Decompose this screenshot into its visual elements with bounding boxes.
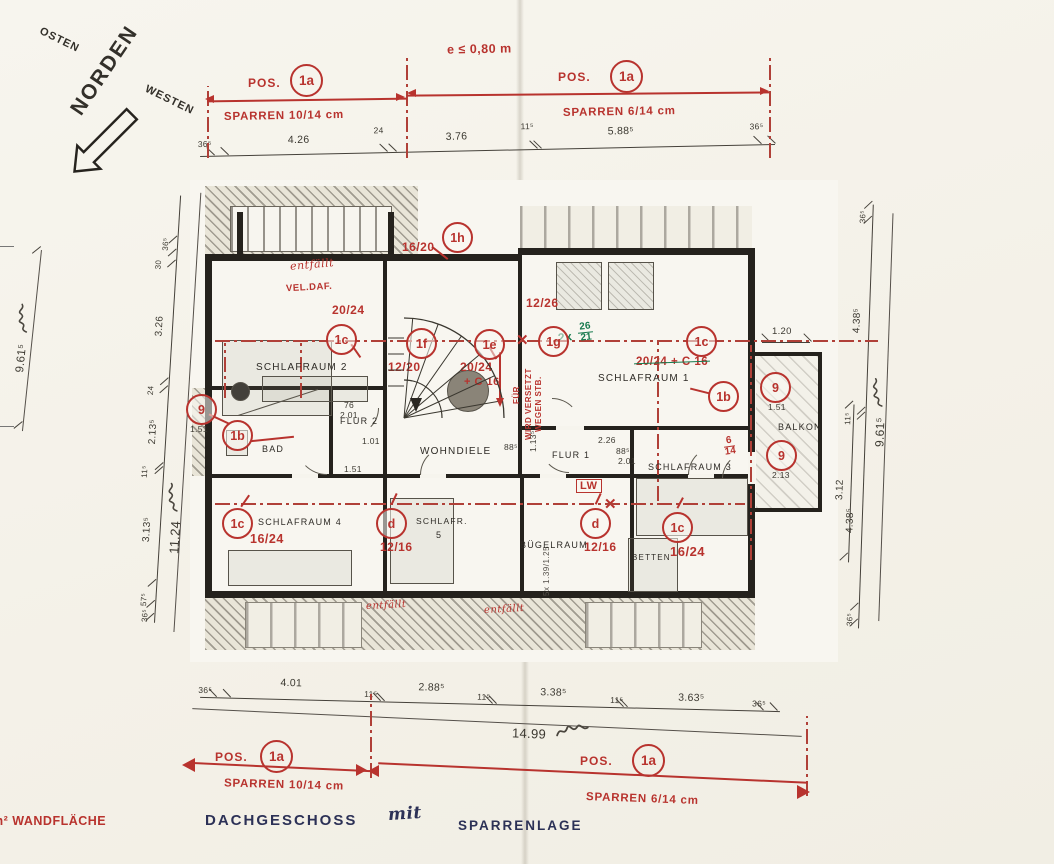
marker-label: 1b bbox=[716, 390, 731, 404]
interior-dim: 2.01 bbox=[618, 456, 636, 466]
balcony-wall bbox=[818, 352, 822, 512]
pos-circle-1a: 1a bbox=[260, 740, 293, 773]
section-line-vertical bbox=[750, 345, 752, 560]
pos-label: POS. bbox=[558, 70, 591, 84]
marker-label: 1c bbox=[335, 333, 349, 347]
room-label-schlafraum4: SCHLAFRAUM 4 bbox=[258, 517, 342, 527]
arrowhead bbox=[797, 785, 810, 799]
pos-marker-1g: 1g bbox=[538, 326, 569, 357]
pos-marker-9: 9 bbox=[760, 372, 791, 403]
section-line bbox=[215, 503, 745, 505]
roof-window-bottom bbox=[245, 602, 362, 648]
compass-west-label: WESTEN bbox=[143, 83, 196, 117]
note-entfaellt: entfällt bbox=[366, 599, 407, 612]
arrowhead bbox=[368, 765, 379, 777]
marker-label: 1c bbox=[231, 517, 245, 531]
arrowhead bbox=[407, 89, 416, 97]
compass-east-label: OSTEN bbox=[38, 25, 82, 55]
tick-mark bbox=[220, 147, 229, 156]
pos-label: POS. bbox=[215, 750, 248, 764]
rafter-note: 20/24 bbox=[332, 303, 365, 317]
dimension-value: 3.63⁵ bbox=[678, 692, 705, 705]
rafter-note: 16/24 bbox=[250, 532, 284, 546]
dimension-value: 11⁵ bbox=[520, 121, 533, 131]
dimension-value: 36⁵ bbox=[845, 613, 854, 626]
overall-dimension: 9.61⁵ bbox=[872, 417, 887, 447]
rafter-note: 12/16 bbox=[584, 540, 617, 554]
sparren-label-bottom-left: SPARREN 10/14 cm bbox=[224, 777, 344, 792]
pos-circle-1a: 1a bbox=[610, 60, 643, 93]
stair-steps-note: 5x 1.39/1.25 bbox=[542, 546, 551, 596]
dimension-value: 5.88⁵ bbox=[608, 125, 635, 138]
tick-mark bbox=[864, 201, 873, 210]
dimension-value: 24 bbox=[146, 385, 156, 395]
interior-dim: 2.26 bbox=[598, 435, 616, 445]
room-label-schlafr5-number: 5 bbox=[436, 530, 442, 540]
arrowhead bbox=[396, 93, 405, 101]
dimension-value: 4.26 bbox=[288, 134, 310, 146]
pos-marker-d: d bbox=[376, 508, 407, 539]
room-label-flur2: FLUR 2 bbox=[340, 416, 378, 426]
green-note-fraction: 26 21 bbox=[577, 321, 594, 343]
wall-segment bbox=[205, 591, 755, 598]
partition-wall bbox=[518, 255, 522, 478]
drawing-title: DACHGESCHOSS bbox=[205, 812, 357, 829]
hand-check-scribble bbox=[16, 302, 33, 333]
overall-dimension: 14.99 bbox=[512, 725, 547, 741]
section-line-vertical bbox=[657, 341, 659, 501]
balcony-wall bbox=[752, 508, 822, 512]
sparren-label-top-right: SPARREN 6/14 cm bbox=[563, 105, 676, 119]
marker-label: d bbox=[592, 517, 600, 531]
floor-plan-drawing: OSTEN NORDEN WESTEN e ≤ 0,80 m POS. 1a S… bbox=[0, 0, 1054, 864]
pos-circle-label: 1a bbox=[299, 73, 314, 88]
dimension-value: 36⁵ bbox=[198, 685, 212, 695]
tick-mark bbox=[222, 689, 231, 698]
tick-mark bbox=[388, 143, 397, 152]
dimension-value: 3.26 bbox=[153, 316, 165, 337]
arrowhead bbox=[760, 87, 769, 95]
dimension-value: 36⁵ bbox=[161, 237, 171, 251]
interior-dim: 1.01 bbox=[362, 436, 380, 446]
dimension-value: 3.76 bbox=[446, 130, 468, 142]
pos-span-line bbox=[407, 91, 769, 96]
fraction-bottom: 14 bbox=[724, 445, 737, 457]
hand-check-scribble bbox=[872, 377, 887, 407]
bed-marking bbox=[224, 343, 226, 398]
pos-label: POS. bbox=[580, 754, 613, 768]
roof-window-bottom bbox=[585, 602, 702, 648]
red-arrow-down bbox=[496, 398, 504, 407]
room-label-betten: BETTEN bbox=[632, 553, 671, 562]
pos-circle-1a: 1a bbox=[290, 64, 323, 97]
tick-mark bbox=[379, 144, 388, 153]
annotation-versetzt: WIRD VERSETZT bbox=[524, 368, 533, 440]
room-label-schlafraum3: SCHLAFRAUM 3 bbox=[648, 462, 732, 472]
dimension-line bbox=[848, 404, 855, 562]
wall-segment bbox=[205, 254, 521, 261]
pos-label: POS. bbox=[248, 76, 281, 90]
sparren-label-bottom-right: SPARREN 6/14 cm bbox=[586, 791, 699, 807]
note-entfaellt: entfällt bbox=[484, 603, 525, 616]
dimension-value: 36⁵ bbox=[752, 698, 766, 708]
rafter-note: 16/24 bbox=[670, 544, 705, 559]
marker-label: d bbox=[388, 517, 396, 531]
wall-area-note: m² WANDFLÄCHE bbox=[0, 814, 106, 828]
interior-dim: 1.51 bbox=[344, 464, 362, 474]
pos-marker-1h: 1h bbox=[442, 222, 473, 253]
rafter-note: 16/20 bbox=[402, 240, 435, 254]
door-opening bbox=[540, 474, 566, 478]
pos-span-line bbox=[207, 98, 407, 102]
dimension-value: 57⁵ bbox=[139, 593, 149, 607]
marker-dim: 1.51 bbox=[768, 402, 786, 412]
dimension-value: 3.38⁵ bbox=[540, 686, 567, 699]
note-lw: LW bbox=[576, 479, 602, 493]
interior-dim: 88⁵ bbox=[616, 446, 630, 456]
pos-marker-1c: 1c bbox=[662, 512, 693, 543]
arrowhead bbox=[356, 764, 367, 776]
eaves-note: e ≤ 0,80 m bbox=[447, 41, 512, 56]
dimension-value: 4.01 bbox=[280, 677, 302, 690]
marker-label: 1c bbox=[671, 521, 685, 535]
pos-marker-1c: 1c bbox=[222, 508, 253, 539]
dimension-value: 36⁵ bbox=[140, 609, 150, 623]
dimension-value: 36⁵ bbox=[749, 121, 763, 131]
dimension-value: 11⁵ bbox=[610, 695, 623, 705]
sink bbox=[231, 382, 250, 401]
overall-dimension: 9.61⁵ bbox=[14, 343, 29, 373]
top-dimension-chain: 36⁵ 4.26 24 3.76 11⁵ 5.88⁵ 36⁵ bbox=[200, 130, 775, 168]
dimension-value: 36⁵ bbox=[858, 210, 867, 223]
pos-circle-1a: 1a bbox=[632, 744, 665, 777]
room-label-balkon: BALKON bbox=[778, 422, 822, 432]
fraction-bottom: 21 bbox=[580, 331, 592, 343]
tick-mark bbox=[753, 136, 762, 145]
dormer-cheek bbox=[237, 212, 243, 256]
dimension-value: 11⁵ bbox=[140, 465, 150, 478]
pos-extension-line bbox=[406, 58, 408, 158]
pos-marker-d: d bbox=[580, 508, 611, 539]
dimension-value: 1.20 bbox=[772, 326, 792, 337]
marker-label: 9 bbox=[778, 449, 785, 463]
pos-circle-label: 1a bbox=[641, 753, 656, 768]
pos-extension-line bbox=[806, 716, 808, 796]
drawing-title-sparrenlage: SPARRENLAGE bbox=[458, 818, 583, 833]
balcony-wall bbox=[752, 352, 822, 356]
marker-label: 1c bbox=[695, 335, 709, 349]
room-label-wohndiele: WOHNDIELE bbox=[420, 446, 491, 457]
rafter-note: 12/26 bbox=[526, 296, 559, 310]
dormer-cheek bbox=[388, 212, 394, 256]
dimension-value: 30 bbox=[154, 260, 164, 270]
room-label-schlafraum2: SCHLAFRAUM 2 bbox=[256, 362, 348, 373]
dimension-value: 2.88⁵ bbox=[418, 681, 445, 694]
north-arrow-icon bbox=[52, 102, 144, 194]
dimension-value: 3.12 bbox=[834, 479, 846, 500]
arrowhead bbox=[182, 758, 195, 772]
drawing-title-mit: mit bbox=[387, 803, 422, 825]
dimension-line bbox=[200, 144, 775, 157]
dimension-line bbox=[22, 250, 42, 431]
wardrobe bbox=[228, 550, 352, 586]
bed bbox=[608, 262, 654, 310]
annotation-wegen: WEGEN STB. bbox=[534, 376, 543, 432]
door-opening bbox=[292, 474, 318, 478]
tick-mark bbox=[769, 702, 778, 711]
interior-dim: 1.13⁵ bbox=[528, 430, 538, 452]
rafter-note: 12/16 bbox=[380, 540, 413, 554]
wall-segment bbox=[518, 248, 755, 255]
marker-label: 1g bbox=[546, 335, 561, 349]
marker-label: 1b bbox=[230, 429, 245, 443]
room-label-flur1: FLUR 1 bbox=[552, 450, 590, 460]
marker-label: 1f bbox=[416, 337, 427, 351]
dimension-value: 36⁵ bbox=[198, 139, 212, 149]
dimension-value: 3.13⁵ bbox=[141, 517, 154, 543]
room-label-schlafr5: SCHLAFR. bbox=[416, 516, 468, 526]
dimension-value: 2.13⁵ bbox=[147, 419, 160, 445]
pos-extension-line bbox=[769, 58, 771, 158]
pos-circle-label: 1a bbox=[619, 69, 634, 84]
interior-dim: 88⁵ bbox=[504, 442, 518, 452]
marker-dim: 2.13 bbox=[772, 470, 790, 480]
pos-marker-9: 9 bbox=[186, 394, 217, 425]
edge-tick bbox=[0, 246, 14, 247]
hand-check-scribble bbox=[556, 724, 590, 740]
tick-mark bbox=[845, 401, 854, 410]
marker-label: 1h bbox=[450, 231, 465, 245]
pos-marker-1b: 1b bbox=[222, 420, 253, 451]
overall-dimension: 11.24 bbox=[166, 520, 183, 554]
hand-check-scribble bbox=[167, 481, 183, 512]
room-label-buegelraum: BÜGELRAUM bbox=[520, 540, 588, 550]
pos-circle-label: 1a bbox=[269, 749, 284, 764]
pos-marker-9: 9 bbox=[766, 440, 797, 471]
pos-marker-1e: 1e bbox=[474, 329, 505, 360]
pos-marker-1c: 1c bbox=[686, 326, 717, 357]
partition-wall bbox=[520, 476, 524, 593]
dimension-value: 11⁵ bbox=[477, 692, 490, 702]
room-label-schlafraum1: SCHLAFRAUM 1 bbox=[598, 373, 690, 384]
dimension-value: 4.38⁵ bbox=[851, 308, 863, 333]
bottom-dimension-chain: 36⁵ 4.01 11⁵ 2.88⁵ 11⁵ 3.38⁵ 11⁵ 3.63⁵ 3… bbox=[200, 683, 781, 727]
roof-battens-top-right bbox=[520, 206, 752, 250]
pos-marker-1b: 1b bbox=[708, 381, 739, 412]
interior-dim: 76 bbox=[344, 400, 354, 410]
room-label-bad: BAD bbox=[262, 444, 284, 454]
bed bbox=[556, 262, 602, 310]
tick-mark bbox=[839, 552, 848, 561]
pos-marker-1f: 1f bbox=[406, 328, 437, 359]
marker-label: 1e bbox=[483, 338, 497, 352]
bathtub bbox=[262, 376, 368, 402]
far-left-dimension: 9.61⁵ bbox=[12, 249, 61, 433]
marker-label: 9 bbox=[772, 381, 779, 395]
pos-marker-1c: 1c bbox=[326, 324, 357, 355]
dimension-line bbox=[762, 342, 810, 343]
arrowhead bbox=[205, 95, 214, 103]
marker-label: 9 bbox=[198, 403, 205, 417]
tick-mark bbox=[850, 602, 859, 611]
sparren-label-top-left: SPARREN 10/14 cm bbox=[224, 109, 344, 123]
dimension-value: 24 bbox=[373, 125, 383, 135]
dormer-window bbox=[230, 206, 392, 252]
